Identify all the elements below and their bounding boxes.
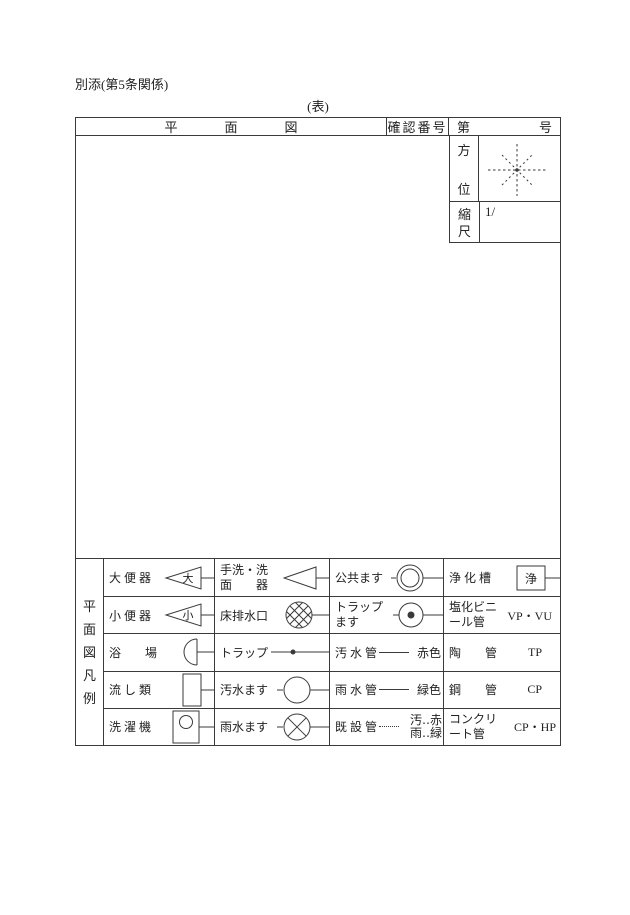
compass-cell: [479, 136, 560, 201]
solid-line-icon: [379, 652, 409, 653]
trap-line-dot-icon: [271, 647, 329, 657]
rain-pipe-color: 緑色: [417, 681, 443, 698]
legend-item-rain-basin: 雨水ます: [214, 708, 329, 745]
concrete-pipe-code: CP・HP: [514, 718, 560, 735]
legend-item-septic-tank: 浄 化 槽 浄: [443, 559, 560, 596]
table-caption: (表): [75, 96, 561, 115]
pvc-pipe-code: VP・VU: [507, 607, 560, 624]
urinal-triangle-icon: 小: [164, 601, 214, 629]
legend-item-pvc-pipe: 塩化ビニ ール管 VP・VU: [443, 596, 560, 633]
document-page: 別添(第5条関係) (表) 平 面 図 確認番号 第 号 方 位: [0, 0, 630, 915]
header-row: 平 面 図 確認番号 第 号: [76, 118, 560, 136]
septic-tank-box-icon: 浄: [516, 564, 560, 592]
compass-star-icon: [479, 137, 560, 201]
orientation-scale-box: 方 位 縮 尺: [449, 136, 560, 243]
legend-item-washing-machine: 洗 濯 機: [104, 708, 214, 745]
legend-item-sewage-pipe: 汚 水 管 赤色: [329, 633, 443, 670]
orientation-row: 方 位: [450, 136, 560, 201]
sewage-pipe-color: 赤色: [417, 644, 443, 661]
bath-half-circle-icon: [176, 637, 214, 667]
legend-item-public-basin: 公共ます: [329, 559, 443, 596]
legend-item-floor-drain: 床排水口: [214, 596, 329, 633]
svg-text:浄: 浄: [525, 572, 537, 586]
legend-grid: 平 面 図 凡 例 大 便 器 大 手洗・洗: [76, 558, 560, 745]
scale-value: 1/: [485, 204, 495, 219]
legend-item-toilet: 大 便 器 大: [104, 559, 214, 596]
scale-value-cell: 1/: [480, 202, 560, 243]
svg-text:大: 大: [183, 571, 194, 585]
legend-item-sewage-basin: 汚水ます: [214, 671, 329, 708]
legend-item-steel-pipe: 鋼 管 CP: [443, 671, 560, 708]
trap-basin-dot-circle-icon: [393, 601, 443, 629]
legend-side-label: 平 面 図 凡 例: [76, 559, 104, 745]
number-suffix: 号: [539, 117, 552, 136]
svg-text:小: 小: [183, 609, 194, 622]
dotted-line-icon: [379, 726, 399, 727]
basin-triangle-icon: [283, 565, 329, 591]
legend-item-urinal: 小 便 器 小: [104, 596, 214, 633]
scale-label: 縮 尺: [450, 202, 480, 243]
plan-title-char: 面: [224, 117, 237, 136]
scale-row: 縮 尺 1/: [450, 201, 560, 243]
legend-item-sink: 流 し 類: [104, 671, 214, 708]
washing-machine-icon: [172, 708, 214, 746]
plan-title: 平 面 図: [76, 118, 387, 135]
steel-pipe-code: CP: [527, 682, 560, 697]
sink-rect-icon: [182, 671, 214, 709]
existing-pipe-colors: 汚‥赤 雨‥緑: [410, 714, 443, 740]
sewage-basin-circle-icon: [277, 675, 329, 705]
confirmation-number-label: 確認番号: [387, 118, 449, 135]
legend-item-trap-basin: トラップ ます: [329, 596, 443, 633]
legend-item-bath: 浴 場: [104, 633, 214, 670]
legend-item-ceramic-pipe: 陶 管 TP: [443, 633, 560, 670]
legend-item-existing-pipe: 既 設 管 汚‥赤 雨‥緑: [329, 708, 443, 745]
rain-basin-x-circle-icon: [277, 712, 329, 742]
legend-item-hand-wash-basin: 手洗・洗 面 器: [214, 559, 329, 596]
legend-item-concrete-pipe: コンクリ ート管 CP・HP: [443, 708, 560, 745]
plan-title-char: 図: [285, 117, 298, 136]
legend-item-trap: トラップ: [214, 633, 329, 670]
ceramic-pipe-code: TP: [528, 645, 560, 660]
plan-form-table: 平 面 図 確認番号 第 号 方 位: [75, 117, 561, 746]
document-number-cell: 第 号: [449, 118, 560, 135]
floor-drain-hatch-circle-icon: [285, 600, 329, 630]
toilet-triangle-icon: 大: [164, 564, 214, 592]
double-circle-icon: [391, 563, 443, 593]
number-prefix: 第: [457, 117, 470, 136]
legend-item-rain-pipe: 雨 水 管 緑色: [329, 671, 443, 708]
plan-title-char: 平: [164, 117, 177, 136]
orientation-label: 方 位: [450, 136, 479, 201]
attachment-note: 別添(第5条関係): [75, 74, 168, 93]
solid-line-icon: [379, 689, 409, 690]
